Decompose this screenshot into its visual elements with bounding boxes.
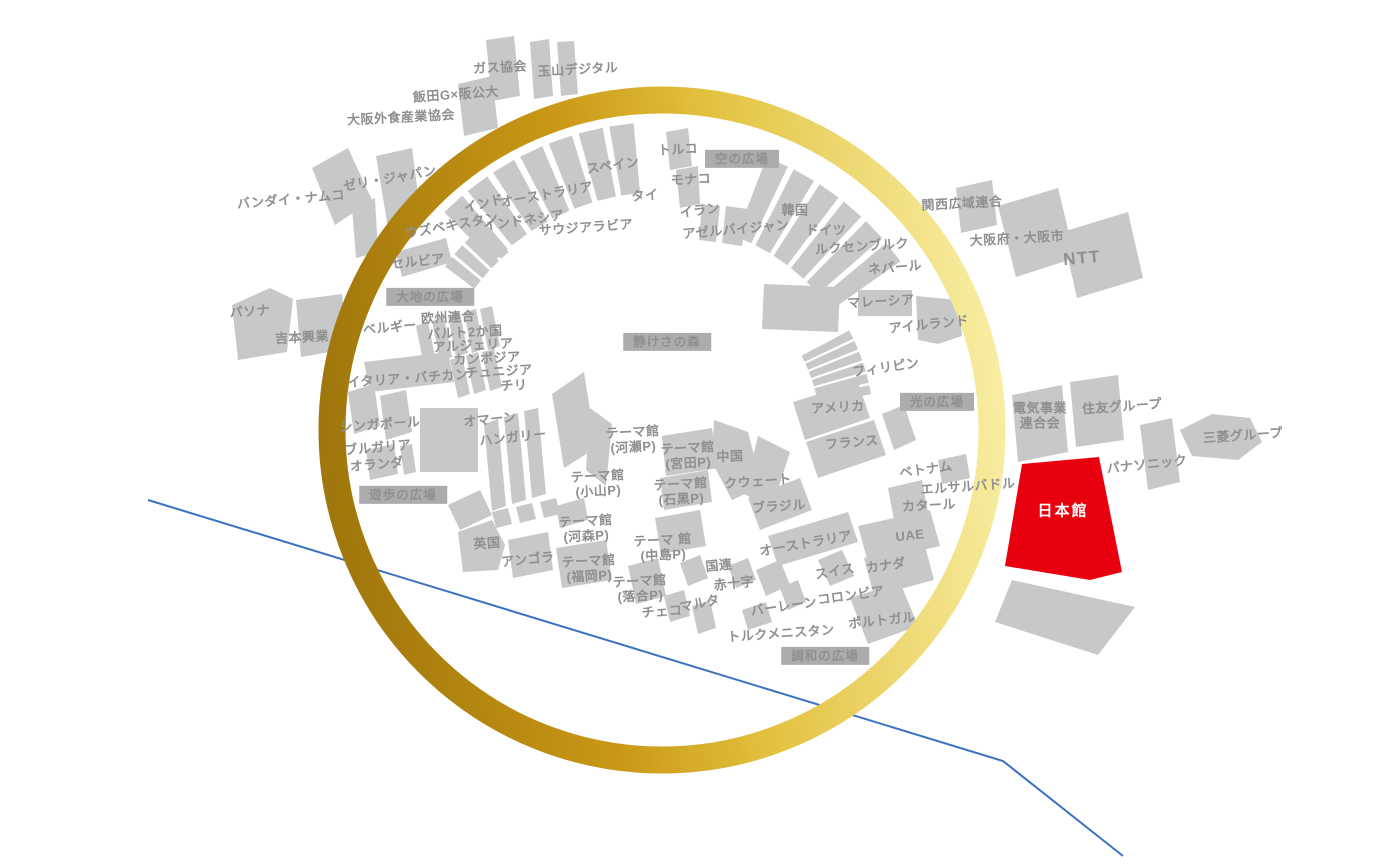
map-label: テーマ館 (石黒P) — [653, 476, 708, 508]
plaza-badge: 調和の広場 — [781, 647, 869, 665]
map-label: オマーン — [463, 410, 518, 430]
map-label: ブラジル — [752, 498, 807, 516]
map-label: テーマ館 (河森P) — [558, 513, 613, 545]
map-label: オーストラリア — [500, 180, 595, 211]
map-label: テーマ館 (河瀬P) — [605, 424, 660, 456]
map-label: セルビア — [390, 252, 445, 272]
map-label: 国連 — [705, 557, 733, 574]
map-label: UAE — [895, 527, 925, 544]
plaza-badge: 静けさの森 — [623, 333, 711, 351]
map-label: テーマ 館 (中島P) — [633, 532, 693, 564]
map-label: フィリピン — [852, 356, 921, 380]
map-label: タイ — [631, 188, 659, 205]
map-label: オランダ — [349, 455, 404, 474]
map-label: ポルトガル — [848, 610, 917, 632]
map-label: エルサルバドル — [920, 476, 1016, 497]
map-label: パナソニック — [1106, 454, 1188, 477]
japan-pavilion-label: 日本館 — [1037, 504, 1088, 521]
map-label: ネパール — [867, 258, 922, 277]
map-label: トルクメニスタン — [727, 623, 835, 645]
map-label: 関西広域連合 — [921, 195, 1003, 214]
map-label: NTT — [1062, 247, 1101, 269]
plaza-badge: 空の広場 — [705, 150, 779, 168]
map-label: ルクセンブルク — [815, 236, 910, 257]
map-label: 三菱グループ — [1202, 426, 1283, 446]
map-label: カタール — [902, 497, 957, 514]
map-label: テーマ館 (小山P) — [570, 468, 625, 500]
map-label: チリ — [500, 378, 528, 394]
map-label: スペイン — [586, 155, 641, 177]
map-label: テーマ館 (落合P) — [612, 573, 667, 605]
map-label: アゼルバイジャン — [682, 218, 790, 242]
map-label: マレーシア — [847, 293, 915, 311]
map-label: テーマ館 (福岡P) — [561, 553, 616, 585]
map-label: 韓国 — [781, 204, 808, 219]
plaza-badge: 遊歩の広場 — [359, 486, 447, 504]
map-label: バンダイ・ナムコ — [236, 188, 345, 212]
map-label: 電気事業 連合会 — [1013, 401, 1067, 430]
map-label: コロンビア — [817, 584, 886, 608]
map-label: ドイツ — [806, 224, 847, 239]
map-label: 中国 — [716, 449, 744, 464]
map-label: 飯田G×阪公大 — [412, 85, 499, 106]
map-label: 赤十字 — [713, 575, 755, 594]
map-label: ゼリ・ジャパン — [342, 164, 438, 195]
map-label: 住友グループ — [1081, 397, 1162, 417]
map-label: アイルランド — [888, 314, 969, 337]
map-label: カナダ — [865, 556, 907, 576]
map-label: クウェート — [724, 472, 792, 491]
map-label: イラン — [679, 201, 721, 221]
map-label: アメリカ — [811, 399, 865, 416]
map-label: オーストラリア — [759, 529, 854, 560]
map-label: モナコ — [670, 172, 711, 189]
map-label: マルタ — [679, 593, 722, 616]
map-label: ガス協会 — [473, 59, 528, 76]
map-label: チェコ — [641, 603, 682, 620]
map-label: シンガポール — [339, 415, 421, 435]
map-label: 玉山デジタル — [537, 61, 618, 80]
plaza-badge: 大地の広場 — [386, 288, 474, 306]
map-label: 吉本興業 — [275, 329, 330, 346]
map-label: スイス — [814, 561, 856, 582]
map-label: ベトナム — [898, 459, 953, 481]
map-label: ベルギー — [362, 318, 417, 337]
expo-site-map: ガス協会玉山デジタル飯田G×阪公大大阪外食産業協会ゼリ・ジャパンバンダイ・ナムコ… — [0, 0, 1400, 864]
map-label: 英国 — [473, 536, 501, 552]
map-label: アンゴラ — [501, 550, 556, 570]
plaza-badge: 光の広場 — [900, 393, 974, 411]
map-label: フランス — [825, 433, 880, 452]
map-label: バーレーン — [750, 595, 818, 619]
map-label: イタリア・バチカン — [347, 368, 469, 391]
map-label: パソナ — [229, 303, 270, 320]
map-label: トルコ — [658, 142, 699, 159]
map-label: 大阪府・大阪市 — [969, 229, 1064, 248]
map-label: 大阪外食産業協会 — [347, 108, 456, 128]
map-label: ハンガリー — [479, 427, 548, 449]
map-label: テーマ館 (宮田P) — [660, 440, 715, 472]
map-label-layer: ガス協会玉山デジタル飯田G×阪公大大阪外食産業協会ゼリ・ジャパンバンダイ・ナムコ… — [0, 0, 1400, 864]
